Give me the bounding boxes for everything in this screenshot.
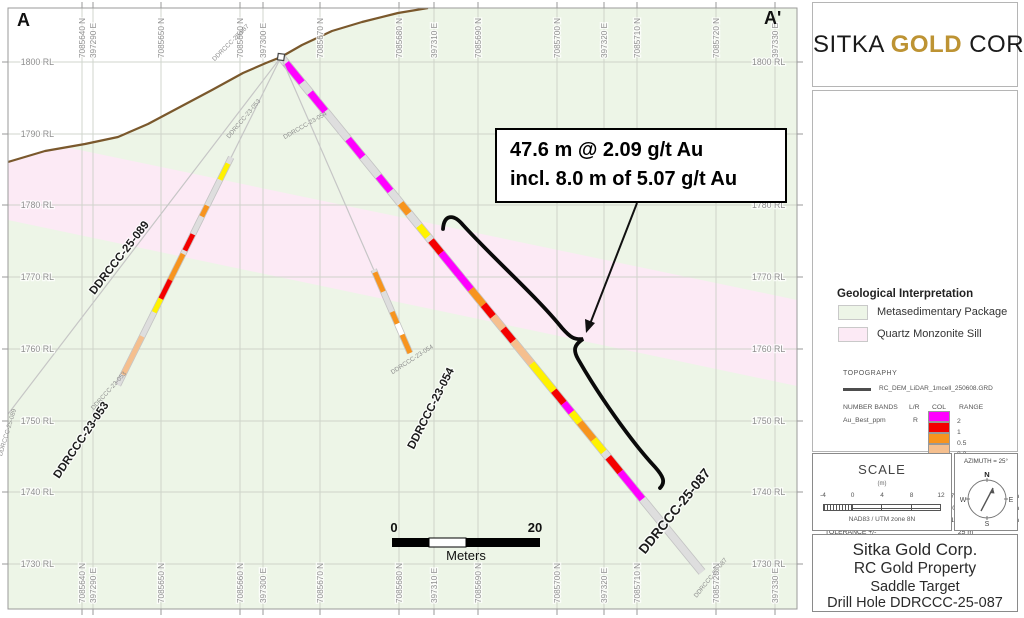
axis-label-bottom: 7085660 N (236, 563, 245, 603)
axis-label-top: 7085680 N (395, 18, 404, 58)
compass-s: S (985, 521, 990, 527)
topography-line-swatch (843, 388, 871, 391)
grade-band-boundary: 2 (957, 418, 961, 425)
title-block-panel: SITKA GOLD CORP Geological Interpretatio… (808, 0, 1024, 618)
axis-label-top: 7085720 N (712, 18, 721, 58)
ruler-segment (853, 505, 882, 510)
rl-label-right: 1800 RL (752, 57, 785, 67)
au-best-ppm-lr: R (913, 417, 918, 424)
azimuth-label: AZIMUTH = 25° (955, 458, 1017, 465)
axis-label-bottom: 397310 E (430, 567, 439, 603)
company-logo: SITKA GOLD CORP (813, 31, 1017, 59)
axis-label-top: 7085640 N (78, 18, 87, 58)
axis-label-bottom: 7085690 N (474, 563, 483, 603)
grade-band-boundary: 1 (957, 429, 961, 436)
axis-label-bottom: 7085680 N (395, 563, 404, 603)
metasedimentary-label: Metasedimentary Package (877, 306, 1007, 318)
drill-collar-marker (277, 53, 284, 60)
ruler-hatched-segment (824, 505, 853, 510)
legend-title: Geological Interpretation (837, 288, 973, 300)
rl-label-left: 1800 RL (21, 57, 54, 67)
rl-label-left: 1750 RL (21, 416, 54, 426)
axis-label-top: 7085670 N (316, 18, 325, 58)
quartz-monzonite-swatch (838, 327, 868, 342)
axis-label-top: 397320 E (600, 22, 609, 58)
scale-bar-units: Meters (446, 548, 486, 563)
company-name: Sitka Gold Corp. (813, 540, 1017, 560)
hole-trace-label-DDRCCC-25-087: DDRCCC-25-087 (211, 23, 251, 63)
au-best-ppm-label: Au_Best_ppm (843, 417, 886, 424)
axis-label-bottom: 397330 E (771, 567, 780, 603)
axis-label-top: 397290 E (89, 22, 98, 58)
number-bands-col-header: COL (932, 404, 946, 411)
scale-tick-label: 12 (933, 492, 949, 499)
rl-label-left: 1730 RL (21, 559, 54, 569)
axis-label-top: 7085700 N (553, 18, 562, 58)
topography-file-label: RC_DEM_LiDAR_1mcell_250608.GRD (879, 385, 993, 392)
legend-box: Geological Interpretation Metasedimentar… (812, 90, 1018, 452)
topography-legend-title: TOPOGRAPHY (843, 370, 897, 377)
compass-e: E (1009, 497, 1014, 504)
grade-band-swatch (928, 422, 950, 433)
scale-tick-label: -4 (815, 492, 831, 499)
cross-section-map: 020Meters7085640 N7085640 N397290 E39729… (0, 0, 806, 618)
logo-word-sitka: SITKA (813, 31, 884, 58)
assay-annotation-box: 47.6 m @ 2.09 g/t Au incl. 8.0 m of 5.07… (495, 128, 787, 203)
rl-label-right: 1770 RL (752, 272, 785, 282)
compass-n: N (984, 470, 989, 479)
property-name: RC Gold Property (813, 560, 1017, 578)
axis-label-bottom: 397300 E (259, 567, 268, 603)
scale-bar-zero: 0 (390, 520, 397, 535)
axis-label-bottom: 7085640 N (78, 563, 87, 603)
axis-label-top: 7085690 N (474, 18, 483, 58)
scale-ruler (823, 504, 941, 511)
datum-label: NAD83 / UTM zone 8N (813, 516, 951, 523)
ruler-segment (882, 505, 911, 510)
company-logo-box: SITKA GOLD CORP (812, 2, 1018, 87)
rl-label-left: 1780 RL (21, 200, 54, 210)
number-bands-range-header: RANGE (959, 404, 983, 411)
axis-label-bottom: 7085650 N (157, 563, 166, 603)
axis-label-top: 7085650 N (157, 18, 166, 58)
compass-w: W (960, 497, 967, 504)
rl-label-left: 1740 RL (21, 487, 54, 497)
scale-tick-label: 4 (874, 492, 890, 499)
axis-label-top: 7085710 N (633, 18, 642, 58)
geological-cross-section: 020Meters7085640 N7085640 N397290 E39729… (0, 0, 1024, 618)
rl-label-right: 1730 RL (752, 559, 785, 569)
rl-label-left: 1770 RL (21, 272, 54, 282)
logo-word-gold: GOLD (891, 31, 962, 58)
axis-label-bottom: 397290 E (89, 567, 98, 603)
scale-tick-label: 0 (845, 492, 861, 499)
assay-annotation-line2: incl. 8.0 m of 5.07 g/t Au (510, 165, 785, 194)
scale-title: SCALE (813, 462, 951, 477)
scale-box: SCALE (m) -404812 NAD83 / UTM zone 8N (812, 453, 952, 531)
grade-band-swatch (928, 411, 950, 422)
number-bands-lr-header: L/R (909, 404, 920, 411)
rl-label-left: 1760 RL (21, 344, 54, 354)
rl-label-right: 1740 RL (752, 487, 785, 497)
map-layers (5, 8, 797, 609)
axis-label-bottom: 7085700 N (553, 563, 562, 603)
section-label-a: A (17, 10, 30, 31)
number-bands-header: NUMBER BANDS (843, 404, 898, 411)
azimuth-box: AZIMUTH = 25° N S W E (954, 453, 1018, 531)
ruler-segment (912, 505, 940, 510)
axis-label-bottom: 7085710 N (633, 563, 642, 603)
metasedimentary-swatch (838, 305, 868, 320)
scale-bar-twenty: 20 (528, 520, 542, 535)
compass-rose: N S W E (960, 469, 1014, 527)
grade-band-swatch (928, 433, 950, 444)
axis-label-bottom: 397320 E (600, 567, 609, 603)
axis-label-top: 397300 E (259, 22, 268, 58)
assay-annotation-line1: 47.6 m @ 2.09 g/t Au (510, 136, 785, 165)
scale-tick-label: 8 (904, 492, 920, 499)
compass-needle (981, 488, 995, 511)
section-label-a-prime: A' (764, 8, 781, 29)
drawing-title-box: Sitka Gold Corp. RC Gold Property Saddle… (812, 534, 1018, 612)
axis-label-top: 397310 E (430, 22, 439, 58)
grade-band-boundary: 0.5 (957, 440, 966, 447)
axis-label-bottom: 7085670 N (316, 563, 325, 603)
rl-label-left: 1790 RL (21, 129, 54, 139)
target-name: Saddle Target (813, 579, 1017, 595)
rl-label-right: 1760 RL (752, 344, 785, 354)
scale-units: (m) (813, 481, 951, 487)
rl-label-right: 1750 RL (752, 416, 785, 426)
drill-hole-name: Drill Hole DDRCCC-25-087 (813, 595, 1017, 611)
logo-word-corp: CORP (969, 31, 1024, 58)
quartz-monzonite-label: Quartz Monzonite Sill (877, 328, 982, 340)
